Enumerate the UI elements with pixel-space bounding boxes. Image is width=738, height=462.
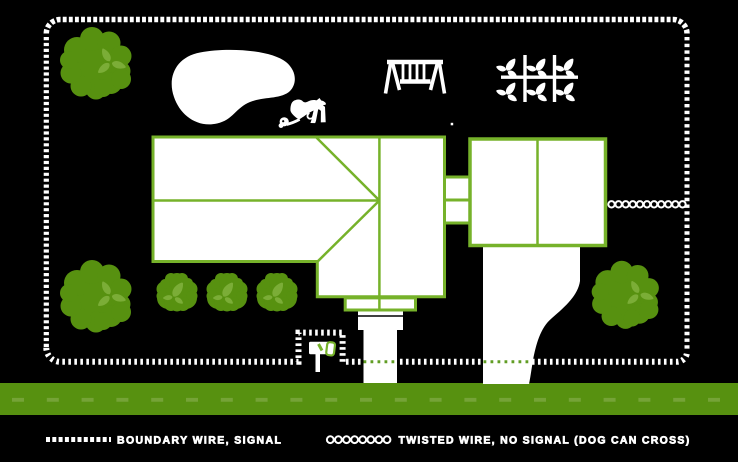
svg-text:BOUNDARY WIRE, SIGNAL: BOUNDARY WIRE, SIGNAL: [117, 435, 282, 447]
svg-text:TWISTED WIRE, NO SIGNAL (DOG C: TWISTED WIRE, NO SIGNAL (DOG CAN CROSS): [399, 435, 691, 447]
